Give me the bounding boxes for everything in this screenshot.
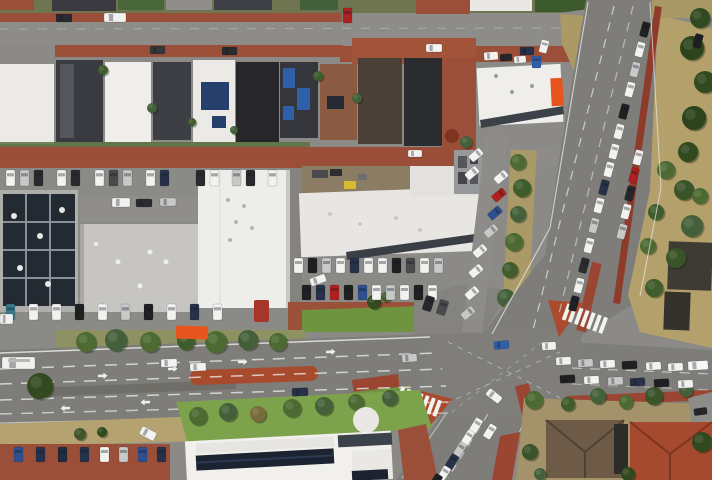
vehicle bbox=[514, 56, 526, 64]
vehicle bbox=[560, 375, 575, 384]
solar-array bbox=[212, 116, 226, 128]
rooftop-vent bbox=[234, 220, 238, 224]
vehicle bbox=[608, 377, 623, 386]
vehicle bbox=[520, 47, 534, 55]
bus bbox=[2, 357, 35, 369]
roof-shadow-edge bbox=[80, 224, 84, 312]
building-corner-white bbox=[353, 407, 379, 433]
forklift bbox=[344, 181, 356, 189]
yard-clutter bbox=[330, 169, 342, 176]
aerial-canvas bbox=[0, 0, 712, 480]
top-white-roof bbox=[470, 0, 532, 11]
rooftop-vent bbox=[418, 228, 422, 232]
vehicle bbox=[20, 170, 29, 186]
vehicle bbox=[160, 170, 169, 186]
vehicle bbox=[294, 258, 303, 273]
vehicle bbox=[210, 170, 219, 186]
vehicle bbox=[138, 447, 147, 462]
rooftop-plant-unit bbox=[458, 156, 467, 168]
vehicle bbox=[406, 258, 415, 273]
vehicle bbox=[420, 258, 429, 273]
vehicle bbox=[343, 8, 352, 23]
rooftop-ac-unit bbox=[116, 260, 121, 265]
vehicle bbox=[190, 304, 199, 320]
vehicle bbox=[112, 198, 130, 207]
brick-planter bbox=[445, 129, 459, 143]
rooftop-vent bbox=[494, 74, 498, 78]
vehicle bbox=[190, 363, 206, 372]
vehicle bbox=[322, 258, 331, 273]
vehicle bbox=[109, 170, 118, 186]
vehicle bbox=[532, 56, 541, 68]
top-house-roof bbox=[214, 0, 272, 10]
vehicle bbox=[57, 170, 66, 186]
vehicle bbox=[400, 285, 409, 300]
top-trees bbox=[535, 0, 587, 12]
house-roof-dark bbox=[153, 62, 191, 140]
vehicle bbox=[161, 359, 177, 368]
vehicle bbox=[196, 170, 205, 186]
vehicle bbox=[136, 199, 152, 207]
vehicle bbox=[392, 258, 401, 273]
solar-panel-row bbox=[352, 469, 388, 480]
vehicle bbox=[484, 52, 499, 61]
aerial-photo bbox=[0, 0, 712, 480]
house-roof-white bbox=[0, 64, 54, 144]
vehicle bbox=[386, 285, 395, 300]
vehicle bbox=[316, 285, 325, 300]
vehicle bbox=[14, 447, 23, 462]
vehicle bbox=[500, 54, 512, 62]
rooftop-ac-unit bbox=[148, 250, 153, 255]
vehicle bbox=[119, 447, 128, 462]
brick-parking-bay bbox=[55, 45, 343, 57]
vehicle bbox=[668, 363, 683, 372]
vehicle bbox=[402, 353, 418, 362]
vehicle bbox=[688, 360, 708, 370]
building-white-roof bbox=[198, 170, 290, 308]
vehicle bbox=[600, 360, 615, 369]
vehicle bbox=[160, 198, 176, 206]
hedge-strip bbox=[0, 142, 310, 147]
top-hedge bbox=[300, 0, 338, 10]
vehicle bbox=[336, 258, 345, 273]
vehicle bbox=[414, 285, 423, 300]
rooftop-ac-unit bbox=[11, 213, 17, 219]
brick-street-north-leg bbox=[416, 0, 470, 14]
rooftop-vent bbox=[530, 84, 534, 88]
vehicle bbox=[0, 314, 13, 324]
rooftop-vent bbox=[250, 226, 254, 230]
vehicle bbox=[378, 258, 387, 273]
vehicle bbox=[56, 14, 72, 22]
vehicle bbox=[584, 376, 599, 385]
building-grey-roof bbox=[80, 224, 198, 312]
vehicle bbox=[6, 170, 15, 186]
vehicle bbox=[222, 47, 237, 55]
house-roof-dark bbox=[404, 58, 442, 146]
vehicle bbox=[434, 258, 443, 273]
solar-array bbox=[283, 68, 295, 88]
restaurant-orange-canopy bbox=[550, 78, 563, 107]
vehicle bbox=[104, 13, 126, 22]
vehicle bbox=[150, 46, 165, 54]
top-brick-corner bbox=[0, 0, 34, 10]
top-house-roof bbox=[52, 0, 116, 11]
vehicle bbox=[654, 379, 669, 388]
rooftop-vent bbox=[510, 90, 514, 94]
yard-clutter bbox=[358, 174, 367, 180]
solar-array bbox=[283, 106, 294, 120]
vehicle bbox=[146, 170, 155, 186]
box-truck-red bbox=[254, 300, 269, 322]
solar-dark-strip bbox=[614, 424, 628, 474]
bus-roof-stripe bbox=[8, 359, 30, 362]
vehicle bbox=[678, 380, 693, 389]
brick-parking-bay bbox=[0, 13, 342, 22]
vehicle bbox=[408, 150, 422, 157]
shipping-container-orange bbox=[176, 325, 208, 339]
house-roof-white bbox=[105, 62, 151, 142]
solar-array bbox=[201, 82, 229, 110]
house-roof-dark bbox=[663, 292, 690, 331]
vehicle bbox=[622, 361, 637, 370]
vehicle bbox=[232, 170, 241, 186]
rooftop-vent bbox=[242, 204, 246, 208]
rooftop-vent bbox=[228, 238, 232, 242]
rooftop-vent bbox=[394, 216, 398, 220]
vehicle bbox=[29, 304, 38, 320]
vehicle bbox=[75, 304, 84, 320]
vehicle bbox=[52, 304, 61, 320]
rooftop-ac-unit bbox=[138, 284, 143, 289]
vehicle bbox=[98, 304, 107, 320]
house-roof-brown bbox=[358, 58, 402, 144]
solar-array bbox=[297, 88, 310, 110]
rooftop-vent bbox=[226, 198, 230, 202]
vehicle bbox=[268, 170, 277, 186]
house-roof-dark bbox=[236, 62, 279, 142]
vehicle bbox=[80, 447, 89, 462]
rooftop-ac-unit bbox=[59, 207, 65, 213]
vehicle bbox=[213, 304, 222, 320]
vehicle bbox=[123, 170, 132, 186]
rooftop-ac-unit bbox=[94, 242, 98, 246]
rooftop-ac-unit bbox=[45, 281, 51, 287]
vehicle bbox=[350, 258, 359, 273]
rooftop-ac-unit bbox=[17, 265, 23, 271]
vehicle bbox=[95, 170, 104, 186]
vehicle bbox=[36, 447, 45, 462]
vehicle bbox=[292, 388, 308, 397]
vehicle bbox=[71, 170, 80, 186]
vehicle bbox=[330, 285, 339, 300]
rooftop-vent bbox=[358, 222, 362, 226]
vehicle bbox=[556, 357, 571, 366]
vehicle bbox=[630, 378, 645, 387]
roof-shadow-edge bbox=[286, 170, 290, 308]
vehicle bbox=[308, 258, 317, 273]
vehicle bbox=[372, 285, 381, 300]
vehicle bbox=[364, 258, 373, 273]
yard-clutter bbox=[312, 170, 328, 178]
vehicle bbox=[578, 359, 593, 368]
vehicle bbox=[144, 304, 153, 320]
vehicle bbox=[344, 285, 353, 300]
vehicle bbox=[358, 285, 367, 300]
vehicle bbox=[58, 447, 67, 462]
top-hedge bbox=[118, 0, 164, 10]
vehicle bbox=[121, 304, 130, 320]
vehicle bbox=[246, 170, 255, 186]
roof-shadow-streak bbox=[60, 64, 74, 138]
vehicle bbox=[100, 447, 109, 462]
vehicle bbox=[34, 170, 43, 186]
vehicle bbox=[494, 340, 510, 349]
vehicle bbox=[157, 447, 166, 462]
vehicle bbox=[542, 342, 556, 351]
rooftop-ac-unit bbox=[37, 233, 43, 239]
rooftop-vent bbox=[328, 212, 332, 216]
vehicle bbox=[167, 304, 176, 320]
vehicle bbox=[426, 44, 442, 52]
solar-array bbox=[327, 96, 344, 109]
vehicle bbox=[646, 362, 661, 371]
top-driveway bbox=[166, 0, 212, 10]
vehicle bbox=[302, 285, 311, 300]
rooftop-ac-unit bbox=[164, 260, 169, 265]
